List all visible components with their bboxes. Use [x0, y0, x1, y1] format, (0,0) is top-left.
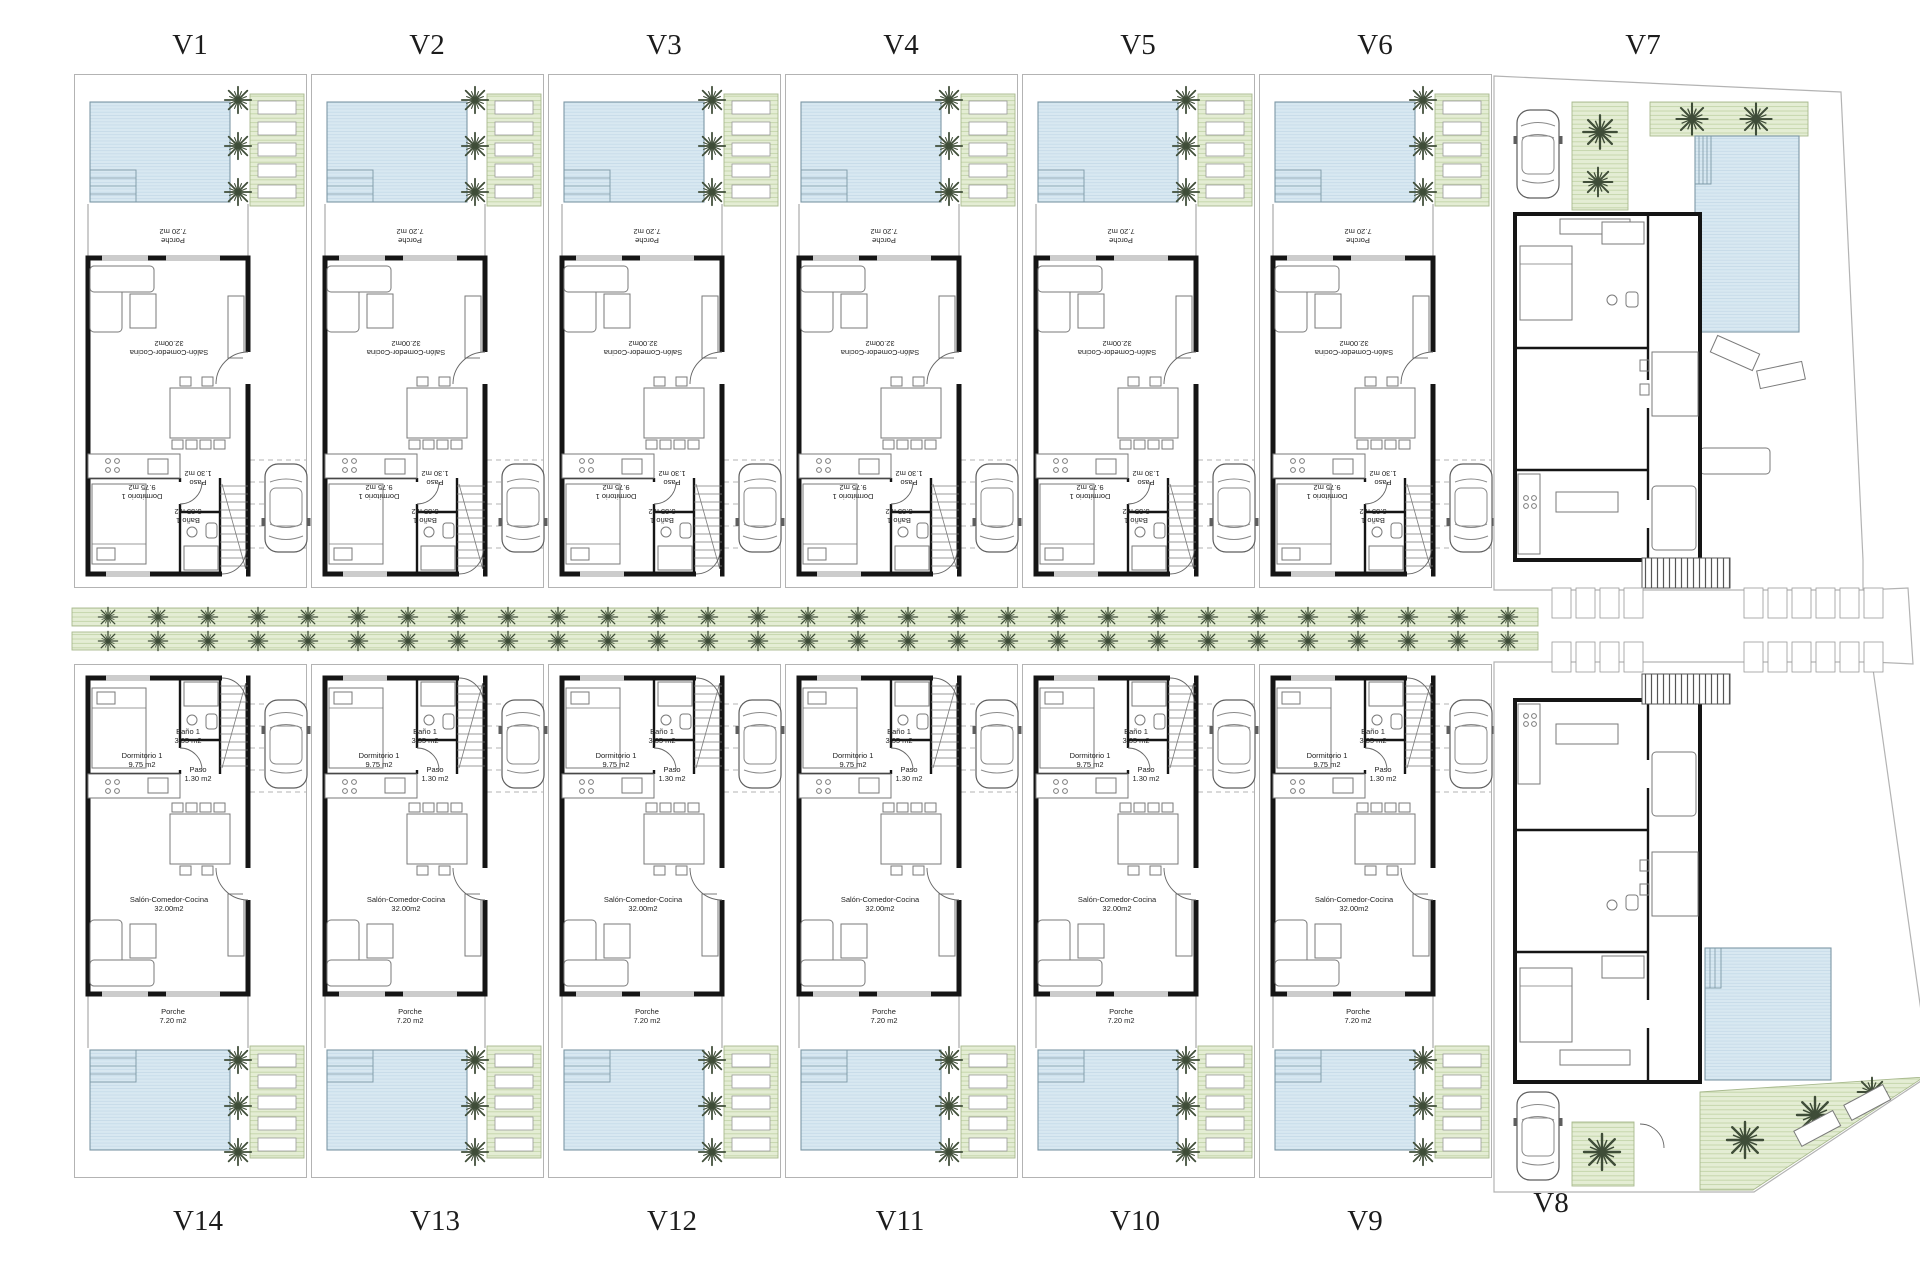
- room-label-salon-name: Salón-Comedor-Cocina: [1315, 895, 1394, 904]
- room-label-porche-area: 7.20 m2: [1107, 227, 1134, 236]
- room-label-porche-area: 7.20 m2: [633, 227, 660, 236]
- room-label-bano-name: Baño 1: [413, 727, 437, 736]
- paving-slab: [1576, 588, 1595, 618]
- villa-label-v5: V5: [1120, 29, 1155, 61]
- room-label-salon-area: 32.00m2: [865, 904, 894, 913]
- room-label-bano-area: 3.35 m2: [411, 507, 438, 516]
- room-label-paso-name: Paso: [900, 765, 917, 774]
- room-label-salon-area: 32.00m2: [154, 339, 183, 348]
- room-label-paso-name: Paso: [189, 478, 206, 487]
- room-label-paso-area: 1.30 m2: [1369, 469, 1396, 478]
- room-label-porche-name: Porche: [161, 1007, 185, 1016]
- site-plan: V1 V2 V3 V4 V5 V6 V7 V14 V13 V12 V11 V10…: [0, 0, 1920, 1280]
- room-label-dormitorio-area: 9.75 m2: [602, 760, 629, 769]
- villa-label-v2: V2: [409, 29, 444, 61]
- room-label-bano-name: Baño 1: [1124, 516, 1148, 525]
- villa-label-v14: V14: [173, 1205, 223, 1237]
- street-palm: [1098, 631, 1117, 650]
- sofa: [1652, 486, 1696, 550]
- street-palm: [998, 607, 1017, 626]
- street-palm: [848, 607, 867, 626]
- street-palm: [1348, 631, 1367, 650]
- room-label-paso-name: Paso: [663, 478, 680, 487]
- room-label-dormitorio-name: Dormitorio 1: [1307, 751, 1348, 760]
- street-palm: [798, 631, 817, 650]
- paving-slab: [1624, 642, 1643, 672]
- street-palm: [1048, 607, 1067, 626]
- room-label-salon-name: Salón-Comedor-Cocina: [603, 348, 682, 357]
- room-label-salon-area: 32.00m2: [1339, 904, 1368, 913]
- room-label-dormitorio-name: Dormitorio 1: [596, 751, 637, 760]
- villa-label-v12: V12: [647, 1205, 697, 1237]
- room-label-salon-area: 32.00m2: [391, 339, 420, 348]
- room-label-bano-name: Baño 1: [413, 516, 437, 525]
- room-label-salon-name: Salón-Comedor-Cocina: [1314, 348, 1393, 357]
- room-label-dormitorio-area: 9.75 m2: [839, 483, 866, 492]
- room-label-porche-area: 7.20 m2: [1344, 1016, 1371, 1025]
- paving-slab: [1840, 588, 1859, 618]
- room-label-paso-area: 1.30 m2: [421, 469, 448, 478]
- villa-label-v11: V11: [876, 1205, 925, 1237]
- room-label-dormitorio-area: 9.75 m2: [365, 760, 392, 769]
- room-label-dormitorio-area: 9.75 m2: [1313, 760, 1340, 769]
- room-label-paso-area: 1.30 m2: [184, 469, 211, 478]
- room-label-porche-area: 7.20 m2: [633, 1016, 660, 1025]
- street-palm: [948, 631, 967, 650]
- room-label-bano-area: 3.35 m2: [648, 507, 675, 516]
- street-palm: [448, 607, 467, 626]
- villa-label-v9: V9: [1347, 1205, 1382, 1237]
- paving-slab: [1744, 588, 1763, 618]
- room-label-bano-name: Baño 1: [887, 727, 911, 736]
- street-palm: [148, 607, 167, 626]
- paving-slab: [1792, 588, 1811, 618]
- paving-slab: [1600, 642, 1619, 672]
- street-palm: [1248, 631, 1267, 650]
- sofa: [1652, 752, 1696, 816]
- room-label-salon-name: Salón-Comedor-Cocina: [366, 348, 445, 357]
- room-label-bano-name: Baño 1: [1124, 727, 1148, 736]
- room-label-salon-name: Salón-Comedor-Cocina: [367, 895, 446, 904]
- room-label-salon-name: Salón-Comedor-Cocina: [604, 895, 683, 904]
- kitchen-island: [1556, 492, 1618, 512]
- room-label-paso-area: 1.30 m2: [1369, 774, 1396, 783]
- room-label-bano-area: 3.35 m2: [648, 736, 675, 745]
- street-palm: [1348, 607, 1367, 626]
- street-palm: [1198, 607, 1217, 626]
- bed: [1520, 968, 1572, 1042]
- villa-label-v8: V8: [1533, 1187, 1568, 1219]
- street-palm: [1148, 607, 1167, 626]
- paving-slab: [1864, 588, 1883, 618]
- room-label-paso-area: 1.30 m2: [421, 774, 448, 783]
- room-label-dormitorio-area: 9.75 m2: [128, 483, 155, 492]
- street-palm: [298, 607, 317, 626]
- room-label-dormitorio-name: Dormitorio 1: [833, 492, 874, 501]
- room-label-dormitorio-area: 9.75 m2: [1076, 760, 1103, 769]
- street-palm: [1048, 631, 1067, 650]
- street-palm: [698, 607, 717, 626]
- street-stairs-upper: [1642, 558, 1730, 588]
- room-label-bano-area: 3.35 m2: [174, 507, 201, 516]
- paving-slab: [1552, 642, 1571, 672]
- room-label-paso-name: Paso: [1374, 765, 1391, 774]
- street-palm: [298, 631, 317, 650]
- street-palm: [998, 631, 1017, 650]
- room-label-porche-name: Porche: [635, 236, 659, 245]
- room-label-porche-area: 7.20 m2: [1107, 1016, 1134, 1025]
- room-label-dormitorio-area: 9.75 m2: [365, 483, 392, 492]
- room-label-salon-area: 32.00m2: [628, 339, 657, 348]
- street-palm: [948, 607, 967, 626]
- street-palm: [248, 631, 267, 650]
- street-palm: [198, 631, 217, 650]
- room-label-bano-area: 3.35 m2: [885, 507, 912, 516]
- paving-slab: [1816, 642, 1835, 672]
- street-palm: [1398, 631, 1417, 650]
- street-palm: [798, 607, 817, 626]
- room-label-bano-area: 3.35 m2: [885, 736, 912, 745]
- room-label-porche-name: Porche: [398, 1007, 422, 1016]
- villa-label-v7: V7: [1625, 29, 1660, 61]
- room-label-salon-area: 32.00m2: [1102, 339, 1131, 348]
- street-palm: [1298, 631, 1317, 650]
- street-palm: [748, 607, 767, 626]
- room-label-bano-area: 3.35 m2: [1359, 507, 1386, 516]
- paving-slab: [1792, 642, 1811, 672]
- room-label-porche-name: Porche: [1109, 236, 1133, 245]
- paving-slab: [1840, 642, 1859, 672]
- street-palm: [498, 631, 517, 650]
- room-label-porche-area: 7.20 m2: [870, 227, 897, 236]
- room-label-dormitorio-area: 9.75 m2: [839, 760, 866, 769]
- street-palm: [348, 631, 367, 650]
- street-palm: [548, 607, 567, 626]
- room-label-porche-area: 7.20 m2: [159, 1016, 186, 1025]
- room-label-salon-name: Salón-Comedor-Cocina: [1077, 348, 1156, 357]
- room-label-dormitorio-name: Dormitorio 1: [1307, 492, 1348, 501]
- street-palm: [748, 631, 767, 650]
- villa-label-v10: V10: [1110, 1205, 1160, 1237]
- room-label-porche-area: 7.20 m2: [159, 227, 186, 236]
- room-label-paso-area: 1.30 m2: [895, 774, 922, 783]
- room-label-bano-name: Baño 1: [176, 516, 200, 525]
- street-palm: [698, 631, 717, 650]
- street-palm: [198, 607, 217, 626]
- street-palm: [598, 631, 617, 650]
- room-label-salon-area: 32.00m2: [628, 904, 657, 913]
- room-label-salon-area: 32.00m2: [154, 904, 183, 913]
- street-palm: [548, 631, 567, 650]
- villa-label-v3: V3: [646, 29, 681, 61]
- room-label-salon-area: 32.00m2: [391, 904, 420, 913]
- room-label-salon-name: Salón-Comedor-Cocina: [840, 348, 919, 357]
- room-label-paso-area: 1.30 m2: [658, 469, 685, 478]
- street-palm: [648, 631, 667, 650]
- floor-plan-canvas: V1 V2 V3 V4 V5 V6 V7 V14 V13 V12 V11 V10…: [0, 0, 1920, 1280]
- paving-slab: [1552, 588, 1571, 618]
- room-label-paso-name: Paso: [1374, 478, 1391, 487]
- room-label-paso-area: 1.30 m2: [184, 774, 211, 783]
- room-label-porche-area: 7.20 m2: [396, 227, 423, 236]
- room-label-porche-area: 7.20 m2: [396, 1016, 423, 1025]
- street-palm: [98, 607, 117, 626]
- street-palm: [1148, 631, 1167, 650]
- villa-plan-v8: [1494, 662, 1920, 1192]
- room-label-bano-area: 3.35 m2: [1359, 736, 1386, 745]
- dining-table: [1652, 852, 1698, 916]
- room-label-dormitorio-name: Dormitorio 1: [122, 751, 163, 760]
- room-label-bano-name: Baño 1: [1361, 727, 1385, 736]
- room-label-porche-name: Porche: [161, 236, 185, 245]
- street-palm: [498, 607, 517, 626]
- room-label-bano-name: Baño 1: [650, 516, 674, 525]
- room-label-porche-name: Porche: [872, 236, 896, 245]
- room-label-porche-name: Porche: [872, 1007, 896, 1016]
- street-palm: [898, 607, 917, 626]
- room-label-salon-area: 32.00m2: [1339, 339, 1368, 348]
- street-palm: [898, 631, 917, 650]
- room-label-dormitorio-name: Dormitorio 1: [833, 751, 874, 760]
- street-palm: [1298, 607, 1317, 626]
- street-palm: [248, 607, 267, 626]
- room-label-dormitorio-name: Dormitorio 1: [1070, 492, 1111, 501]
- room-label-paso-name: Paso: [1137, 478, 1154, 487]
- room-label-paso-name: Paso: [189, 765, 206, 774]
- room-label-bano-area: 3.35 m2: [1122, 507, 1149, 516]
- room-label-salon-name: Salón-Comedor-Cocina: [129, 348, 208, 357]
- villa-label-v1: V1: [172, 29, 207, 61]
- bed: [1520, 246, 1572, 320]
- street-stairs-lower: [1642, 674, 1730, 704]
- paving-slab: [1576, 642, 1595, 672]
- room-label-paso-name: Paso: [900, 478, 917, 487]
- paving-slab: [1744, 642, 1763, 672]
- street-palm: [648, 607, 667, 626]
- room-label-salon-area: 32.00m2: [1102, 904, 1131, 913]
- room-label-bano-area: 3.35 m2: [411, 736, 438, 745]
- room-label-salon-name: Salón-Comedor-Cocina: [841, 895, 920, 904]
- street-palm: [848, 631, 867, 650]
- room-label-dormitorio-area: 9.75 m2: [602, 483, 629, 492]
- room-label-paso-area: 1.30 m2: [895, 469, 922, 478]
- villa-label-v13: V13: [410, 1205, 460, 1237]
- dining-table: [1652, 352, 1698, 416]
- room-label-bano-area: 3.35 m2: [174, 736, 201, 745]
- paving-slab: [1816, 588, 1835, 618]
- street-palm: [1498, 607, 1517, 626]
- street-palm: [148, 631, 167, 650]
- villa-label-v4: V4: [883, 29, 919, 61]
- paving-slab: [1768, 588, 1787, 618]
- room-label-paso-area: 1.30 m2: [1132, 774, 1159, 783]
- room-label-dormitorio-name: Dormitorio 1: [359, 492, 400, 501]
- street-palm: [98, 631, 117, 650]
- street-palm: [1098, 607, 1117, 626]
- room-label-porche-name: Porche: [398, 236, 422, 245]
- room-label-paso-name: Paso: [426, 765, 443, 774]
- room-label-salon-area: 32.00m2: [865, 339, 894, 348]
- room-label-salon-name: Salón-Comedor-Cocina: [1078, 895, 1157, 904]
- room-label-dormitorio-name: Dormitorio 1: [1070, 751, 1111, 760]
- room-label-dormitorio-name: Dormitorio 1: [596, 492, 637, 501]
- room-label-bano-area: 3.35 m2: [1122, 736, 1149, 745]
- room-label-porche-name: Porche: [635, 1007, 659, 1016]
- room-label-dormitorio-area: 9.75 m2: [128, 760, 155, 769]
- street-palm: [348, 607, 367, 626]
- street-palm: [448, 631, 467, 650]
- room-label-salon-name: Salón-Comedor-Cocina: [130, 895, 209, 904]
- paving-slab: [1600, 588, 1619, 618]
- room-label-dormitorio-area: 9.75 m2: [1313, 483, 1340, 492]
- room-label-paso-area: 1.30 m2: [658, 774, 685, 783]
- room-label-porche-area: 7.20 m2: [1344, 227, 1371, 236]
- kitchen-island: [1556, 724, 1618, 744]
- street-palm: [1198, 631, 1217, 650]
- paving-slab: [1864, 642, 1883, 672]
- room-label-dormitorio-name: Dormitorio 1: [122, 492, 163, 501]
- room-label-bano-name: Baño 1: [650, 727, 674, 736]
- room-label-bano-name: Baño 1: [887, 516, 911, 525]
- room-label-porche-name: Porche: [1109, 1007, 1133, 1016]
- room-label-bano-name: Baño 1: [1361, 516, 1385, 525]
- street-palm: [1498, 631, 1517, 650]
- villa-label-v6: V6: [1357, 29, 1392, 61]
- pool-v8: [1705, 948, 1831, 1080]
- street-palm: [1248, 607, 1267, 626]
- street-palm: [1448, 631, 1467, 650]
- paving-slab: [1624, 588, 1643, 618]
- room-label-porche-area: 7.20 m2: [870, 1016, 897, 1025]
- kitchen-counter: [1518, 474, 1540, 554]
- paving-slab: [1768, 642, 1787, 672]
- room-label-dormitorio-name: Dormitorio 1: [359, 751, 400, 760]
- room-label-paso-name: Paso: [1137, 765, 1154, 774]
- room-label-paso-name: Paso: [663, 765, 680, 774]
- room-label-bano-name: Baño 1: [176, 727, 200, 736]
- room-label-dormitorio-area: 9.75 m2: [1076, 483, 1103, 492]
- street-palm: [1398, 607, 1417, 626]
- room-label-paso-area: 1.30 m2: [1132, 469, 1159, 478]
- street-palm: [398, 631, 417, 650]
- room-label-porche-name: Porche: [1346, 1007, 1370, 1016]
- street-palm: [598, 607, 617, 626]
- street-palm: [398, 607, 417, 626]
- street-palm: [1448, 607, 1467, 626]
- room-label-paso-name: Paso: [426, 478, 443, 487]
- room-label-porche-name: Porche: [1346, 236, 1370, 245]
